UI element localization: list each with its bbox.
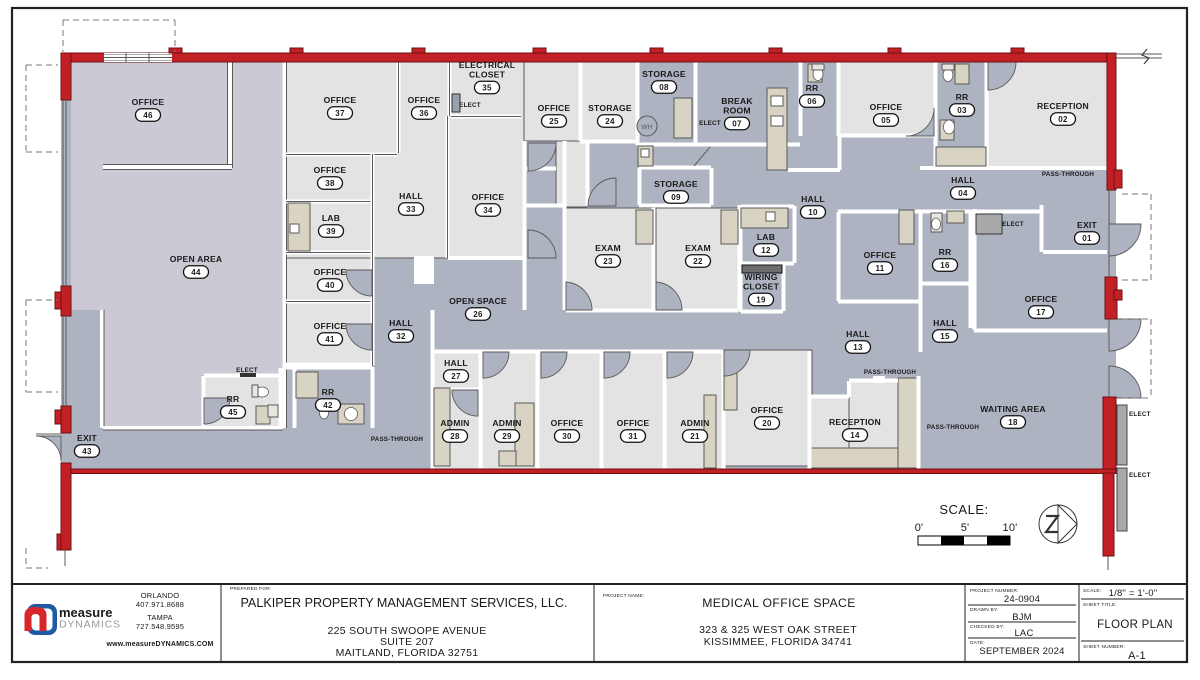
svg-text:DYNAMICS: DYNAMICS [59,619,121,631]
svg-text:ELECT: ELECT [236,367,258,374]
svg-text:HALL: HALL [389,318,413,328]
svg-text:43: 43 [82,447,92,456]
svg-text:ADMIN: ADMIN [492,418,521,428]
svg-text:WH: WH [641,124,652,131]
svg-text:22: 22 [693,257,703,266]
svg-text:OFFICE: OFFICE [314,267,347,277]
svg-text:ADMIN: ADMIN [680,418,709,428]
svg-text:OFFICE: OFFICE [617,418,650,428]
svg-text:HALL: HALL [399,191,423,201]
svg-text:HALL: HALL [801,194,825,204]
svg-text:39: 39 [326,227,336,236]
svg-text:OFFICE: OFFICE [314,165,347,175]
svg-text:PALKIPER PROPERTY MANAGEMENT S: PALKIPER PROPERTY MANAGEMENT SERVICES, L… [240,596,567,610]
svg-text:PREPARED FOR:: PREPARED FOR: [230,586,271,592]
svg-text:EXIT: EXIT [1077,220,1097,230]
svg-text:04: 04 [958,189,968,198]
svg-text:MAITLAND, FLORIDA 32751: MAITLAND, FLORIDA 32751 [336,647,479,659]
svg-text:OFFICE: OFFICE [1025,294,1058,304]
svg-text:727.548.9595: 727.548.9595 [136,622,184,631]
svg-text:EXAM: EXAM [595,243,621,253]
svg-text:OPEN SPACE: OPEN SPACE [449,296,507,306]
svg-text:RR: RR [806,83,819,93]
svg-text:13: 13 [853,343,863,352]
svg-text:06: 06 [807,97,817,106]
svg-text:41: 41 [325,335,335,344]
svg-text:CLOSET: CLOSET [743,282,780,292]
svg-text:45: 45 [228,408,238,417]
svg-text:KISSIMMEE, FLORIDA 34741: KISSIMMEE, FLORIDA 34741 [704,636,852,648]
svg-text:LAB: LAB [757,232,775,242]
svg-text:10: 10 [808,208,818,217]
svg-text:OFFICE: OFFICE [408,95,441,105]
svg-text:18: 18 [1008,418,1018,427]
svg-text:TAMPA: TAMPA [147,613,173,622]
svg-text:RR: RR [322,387,335,397]
svg-text:RR: RR [227,394,240,404]
svg-text:BJM: BJM [1012,612,1032,623]
svg-text:40: 40 [325,281,335,290]
svg-text:PASS-THROUGH: PASS-THROUGH [927,424,979,431]
svg-text:12: 12 [761,246,771,255]
svg-text:26: 26 [473,310,483,319]
svg-text:BREAK: BREAK [721,96,753,106]
svg-text:ELECT: ELECT [699,120,721,127]
svg-text:HALL: HALL [933,318,957,328]
svg-text:STORAGE: STORAGE [642,69,686,79]
svg-text:37: 37 [335,109,345,118]
svg-text:27: 27 [451,372,461,381]
svg-text:46: 46 [143,111,153,120]
svg-text:ORLANDO: ORLANDO [141,591,180,600]
svg-text:OPEN AREA: OPEN AREA [170,254,223,264]
svg-text:WIRING: WIRING [744,272,777,282]
svg-text:0': 0' [915,522,924,534]
svg-text:PROJECT NAME:: PROJECT NAME: [603,593,644,599]
svg-text:HALL: HALL [444,358,468,368]
svg-text:38: 38 [325,179,335,188]
svg-text:17: 17 [1036,308,1046,317]
svg-text:OFFICE: OFFICE [324,95,357,105]
svg-text:30: 30 [562,432,572,441]
svg-text:SHEET TITLE:: SHEET TITLE: [1083,602,1117,608]
svg-text:HALL: HALL [846,329,870,339]
svg-text:WAITING AREA: WAITING AREA [980,404,1046,414]
svg-text:ELECTRICAL: ELECTRICAL [459,60,515,70]
svg-text:25: 25 [549,117,559,126]
svg-text:28: 28 [450,432,460,441]
svg-text:24: 24 [605,117,615,126]
svg-text:24-0904: 24-0904 [1004,594,1040,605]
svg-text:www.measureDYNAMICS.COM: www.measureDYNAMICS.COM [105,641,213,648]
svg-text:CHECKED BY:: CHECKED BY: [970,624,1004,630]
svg-text:36: 36 [419,109,429,118]
svg-text:23: 23 [603,257,613,266]
svg-text:407.971.8688: 407.971.8688 [136,600,184,609]
svg-text:31: 31 [628,432,638,441]
svg-text:A-1: A-1 [1128,650,1146,662]
svg-text:19: 19 [756,296,766,305]
svg-text:RR: RR [956,92,969,102]
svg-text:SCALE:: SCALE: [1083,588,1101,594]
svg-text:LAB: LAB [322,213,340,223]
svg-text:5': 5' [961,522,970,534]
svg-text:OFFICE: OFFICE [551,418,584,428]
svg-text:OFFICE: OFFICE [538,103,571,113]
svg-text:STORAGE: STORAGE [654,179,698,189]
svg-text:42: 42 [323,401,333,410]
svg-text:CLOSET: CLOSET [469,70,506,80]
svg-text:44: 44 [191,268,201,277]
svg-text:03: 03 [957,106,967,115]
svg-text:ROOM: ROOM [723,106,751,116]
svg-text:MEDICAL OFFICE SPACE: MEDICAL OFFICE SPACE [702,596,856,610]
svg-text:09: 09 [671,193,681,202]
svg-text:ELECT: ELECT [459,102,481,109]
svg-text:08: 08 [659,83,669,92]
svg-text:07: 07 [732,120,742,129]
svg-text:LAC: LAC [1014,628,1033,639]
svg-text:1/8" = 1'-0": 1/8" = 1'-0" [1109,588,1158,599]
svg-text:10': 10' [1003,522,1018,534]
svg-text:01: 01 [1082,234,1092,243]
svg-text:HALL: HALL [951,175,975,185]
svg-text:OFFICE: OFFICE [870,102,903,112]
svg-text:FLOOR PLAN: FLOOR PLAN [1097,619,1173,631]
svg-text:ELECT: ELECT [1129,411,1151,418]
svg-text:20: 20 [762,419,772,428]
svg-text:14: 14 [850,431,860,440]
svg-text:33: 33 [406,205,416,214]
svg-text:29: 29 [502,432,512,441]
svg-text:RECEPTION: RECEPTION [1037,101,1089,111]
svg-text:35: 35 [482,84,492,93]
svg-text:EXAM: EXAM [685,243,711,253]
svg-text:21: 21 [690,432,700,441]
svg-text:SEPTEMBER 2024: SEPTEMBER 2024 [979,646,1064,657]
svg-text:EXIT: EXIT [77,433,97,443]
svg-text:PASS-THROUGH: PASS-THROUGH [1042,171,1094,178]
svg-text:ELECT: ELECT [1129,472,1151,479]
svg-text:02: 02 [1058,115,1068,124]
svg-text:32: 32 [396,332,406,341]
svg-text:05: 05 [881,116,891,125]
svg-text:OFFICE: OFFICE [751,405,784,415]
svg-text:OFFICE: OFFICE [864,250,897,260]
svg-text:16: 16 [940,261,950,270]
svg-text:DRAWN BY:: DRAWN BY: [970,607,999,613]
svg-text:OFFICE: OFFICE [472,192,505,202]
svg-text:ELECT: ELECT [1002,221,1024,228]
svg-text:ADMIN: ADMIN [440,418,469,428]
svg-text:OFFICE: OFFICE [314,321,347,331]
svg-text:PASS-THROUGH: PASS-THROUGH [371,436,423,443]
svg-text:SHEET NUMBER:: SHEET NUMBER: [1083,644,1125,650]
svg-text:SCALE:: SCALE: [939,502,988,517]
svg-text:OFFICE: OFFICE [132,97,165,107]
svg-text:RECEPTION: RECEPTION [829,417,881,427]
svg-text:323 & 325 WEST OAK STREET: 323 & 325 WEST OAK STREET [699,624,857,636]
svg-text:STORAGE: STORAGE [588,103,632,113]
svg-text:PASS-THROUGH: PASS-THROUGH [864,369,916,376]
svg-text:34: 34 [483,206,493,215]
svg-text:15: 15 [940,332,950,341]
svg-text:11: 11 [875,264,884,273]
svg-text:RR: RR [939,247,952,257]
